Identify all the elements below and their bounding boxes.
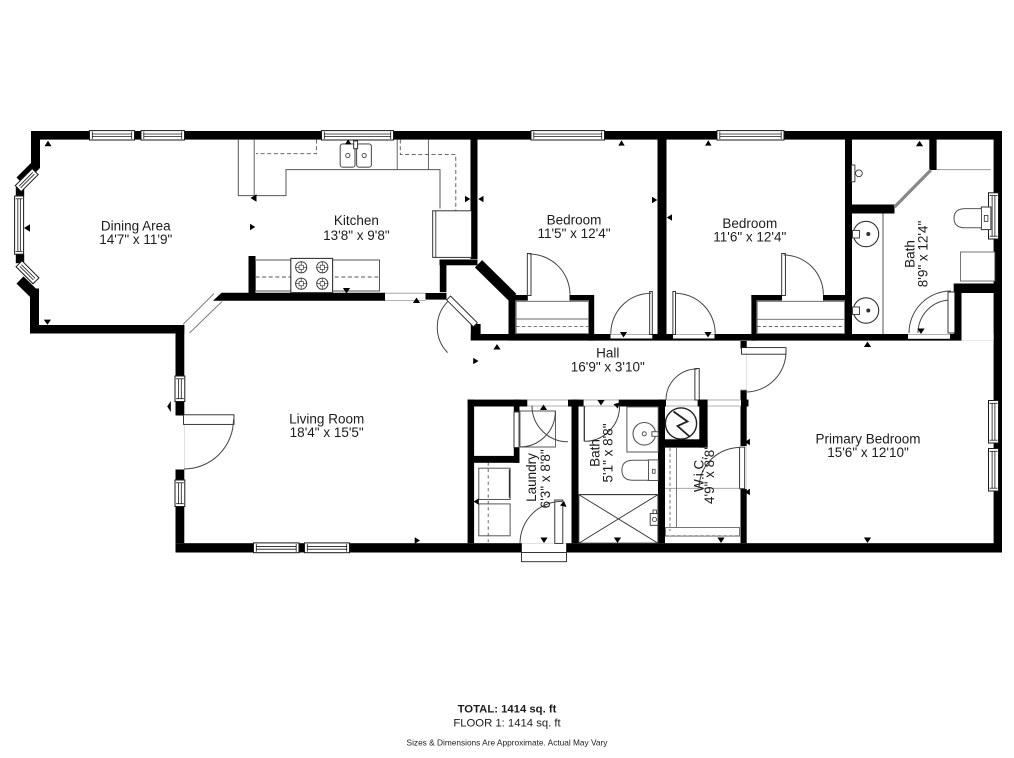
svg-text:16'9" x 3'10": 16'9" x 3'10" xyxy=(571,359,645,374)
svg-text:11'5" x 12'4": 11'5" x 12'4" xyxy=(537,226,610,241)
svg-text:5'1" x 8'8": 5'1" x 8'8" xyxy=(601,423,616,482)
svg-text:11'6" x 12'4": 11'6" x 12'4" xyxy=(713,229,786,244)
svg-text:18'4" x 15'5": 18'4" x 15'5" xyxy=(290,425,364,440)
svg-text:Laundry: Laundry xyxy=(524,453,539,502)
svg-text:8'9" x 12'4": 8'9" x 12'4" xyxy=(915,221,930,288)
svg-text:15'6" x 12'10": 15'6" x 12'10" xyxy=(827,445,909,460)
svg-text:13'8" x 9'8": 13'8" x 9'8" xyxy=(323,228,390,243)
svg-text:TOTAL: 1414 sq. ft: TOTAL: 1414 sq. ft xyxy=(458,704,557,716)
svg-text:Kitchen: Kitchen xyxy=(334,213,379,228)
svg-text:Sizes & Dimensions Are Approxi: Sizes & Dimensions Are Approximate. Actu… xyxy=(407,737,609,747)
svg-text:4'9" x 8'8": 4'9" x 8'8" xyxy=(702,445,717,504)
svg-text:14'7" x 11'9": 14'7" x 11'9" xyxy=(99,232,172,247)
svg-text:FLOOR 1: 1414 sq. ft: FLOOR 1: 1414 sq. ft xyxy=(453,717,561,729)
svg-text:6'3" x 8'8": 6'3" x 8'8" xyxy=(538,449,553,508)
